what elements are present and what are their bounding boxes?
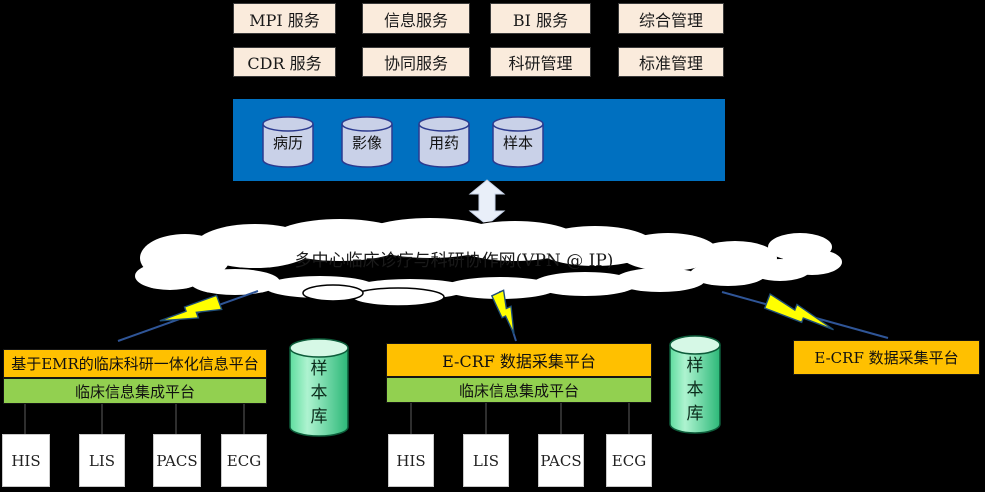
cloud-curl-small (303, 285, 363, 301)
site1-platform-integration: 临床信息集成平台 (3, 378, 267, 404)
service-box-information: 信息服务 (362, 3, 470, 34)
cloud-curl-large (352, 288, 444, 306)
database-label-sample: 样本 (493, 132, 543, 153)
site1-system-box-his: HIS (2, 434, 50, 487)
architecture-diagram: MPI 服务 信息服务 BI 服务 综合管理 CDR 服务 协同服务 科研管理 … (0, 0, 985, 492)
lightning-bolt-icon-left (158, 295, 221, 330)
site1-system-box-pacs: PACS (153, 434, 201, 487)
service-box-bi: BI 服务 (490, 3, 591, 34)
vpn-cloud-label: 多中心临床诊疗与科研协作网(VPN @ IP) (234, 246, 674, 271)
service-box-research-mgmt: 科研管理 (490, 47, 591, 77)
service-box-cdr: CDR 服务 (233, 47, 336, 77)
database-label-imaging: 影像 (342, 132, 392, 153)
service-box-mpi: MPI 服务 (233, 3, 336, 34)
sync-arrow-icon (470, 180, 504, 225)
site2-platform-ecrf: E-CRF 数据采集平台 (386, 343, 652, 377)
service-box-comprehensive-mgmt: 综合管理 (618, 3, 724, 34)
site1-platform-emr-research: 基于EMR的临床科研一体化信息平台 (3, 349, 267, 378)
lightning-bolts (158, 290, 837, 335)
site2-system-box-ecg: ECG (606, 434, 652, 487)
site2-sample-store-label: 样本库 (682, 354, 708, 426)
lightning-bolt-icon-right (765, 294, 838, 334)
site1-sample-store-label: 样本库 (306, 357, 332, 429)
site1-system-box-ecg: ECG (221, 434, 267, 487)
site2-system-box-lis: LIS (463, 434, 509, 487)
site1-system-box-lis: LIS (79, 434, 125, 487)
site2-system-box-pacs: PACS (538, 434, 584, 487)
database-label-records: 病历 (263, 132, 313, 153)
site2-system-box-his: HIS (388, 434, 434, 487)
site3-platform-ecrf: E-CRF 数据采集平台 (793, 340, 980, 375)
service-box-standards-mgmt: 标准管理 (618, 47, 724, 77)
database-label-medication: 用药 (419, 132, 469, 153)
service-box-collaboration: 协同服务 (362, 47, 470, 77)
site2-platform-integration: 临床信息集成平台 (386, 377, 652, 403)
